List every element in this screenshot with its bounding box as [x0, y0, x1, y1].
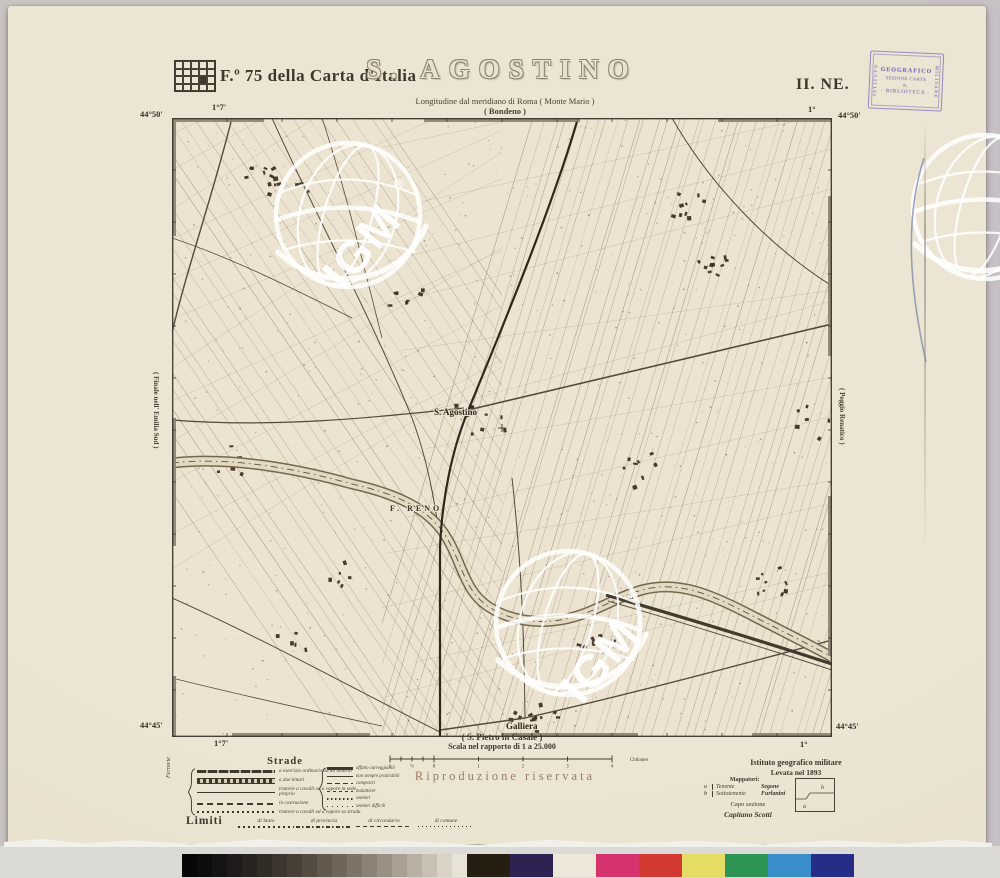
- river-label: F. RENO: [390, 504, 442, 513]
- road-symbol: [327, 767, 353, 770]
- calibration-gray-step: [197, 854, 212, 877]
- mapper-index-diagram: b a: [795, 778, 835, 812]
- sheet-index-grid-icon: [174, 60, 216, 92]
- legend-brace-right: [318, 767, 327, 811]
- topographic-map: S. Agostino F. RENO Galliera: [172, 118, 832, 737]
- calibration-color-patch: [639, 854, 682, 877]
- mapper-row: b Sottotenente Furlanini: [704, 791, 785, 797]
- calibration-color-patch: [768, 854, 811, 877]
- legend-limiti-heading: Limiti: [186, 815, 223, 827]
- institute-credit: Istituto geografico militare: [716, 758, 876, 767]
- calibration-gray-step: [287, 854, 302, 877]
- calibration-color-patch: [553, 854, 596, 877]
- meridian-subtitle: Longitudine dal meridiano di Roma ( Mont…: [305, 96, 705, 106]
- calibration-color-patch: [467, 854, 510, 877]
- under-construction-symbol: [197, 803, 275, 805]
- calibration-gray-step: [317, 854, 332, 877]
- calibration-gray-step: [347, 854, 362, 877]
- coord-lon-bottom-right: 1°: [800, 739, 808, 749]
- survey-date: Levata nel 1893: [716, 768, 876, 777]
- stamp-line4: · BIBLIOTECA ·: [881, 88, 930, 95]
- calibration-color-patch: [510, 854, 553, 877]
- limiti-item: di comune: [418, 818, 474, 827]
- legend-row: affatto carreggiabili: [327, 766, 397, 771]
- road-symbol: [327, 776, 353, 777]
- scale-unit: Chilometri: [630, 758, 648, 763]
- railway-double-symbol: [197, 778, 275, 784]
- boundary-province-symbol: [296, 826, 352, 828]
- calibration-color-patch: [811, 854, 854, 877]
- boundary-district-symbol: [356, 826, 412, 828]
- calibration-gray-step: [257, 854, 272, 877]
- coord-lon-bottom-left: 1°7': [214, 738, 228, 748]
- limiti-item: di Stato: [238, 818, 294, 828]
- calibration-gray-step: [452, 854, 467, 877]
- legend-row: campestri: [327, 781, 397, 786]
- calibration-gray-step: [437, 854, 452, 877]
- color-calibration-bar: [182, 854, 854, 877]
- chief-heading: Capo sezione: [708, 801, 788, 808]
- legend-strade-right: affatto carreggiabili non sempre pratica…: [327, 766, 397, 812]
- quadrant-label: II. NE.: [796, 76, 850, 94]
- calibration-gray-step: [392, 854, 407, 877]
- calibration-gray-step: [227, 854, 242, 877]
- calibration-gray-step: [377, 854, 392, 877]
- limiti-item: di provincia: [296, 818, 352, 828]
- chief-name: Capitano Scotti: [708, 810, 788, 819]
- coord-lon-top-right: 1°: [808, 104, 816, 114]
- adjacent-sheet-south: ( S. Pietro in Casale ): [352, 732, 652, 742]
- calibration-gray-step: [212, 854, 227, 877]
- adjacent-sheet-east: ( Poggio Renatico ): [838, 388, 846, 445]
- calibration-color-patch: [725, 854, 768, 877]
- calibration-gray-step: [407, 854, 422, 877]
- road-symbol: [327, 791, 353, 792]
- calibration-gray-step: [182, 854, 197, 877]
- calibration-gray-step: [302, 854, 317, 877]
- railway-single-symbol: [197, 770, 275, 773]
- coord-lat-bottom-right: 44°45': [836, 721, 859, 731]
- tramway-symbol: [197, 792, 275, 794]
- coord-lat-top-left: 44°50': [140, 109, 163, 119]
- scanned-map-page: F.º 75 della Carta d'Italia S. AGOSTINO …: [0, 0, 1000, 878]
- calibration-color-patch: [682, 854, 725, 877]
- scale-caption: Scala nel rapporto di 1 a 25.000: [352, 742, 652, 751]
- adjacent-sheet-north: ( Bondeno ): [305, 106, 705, 116]
- adjacent-sheet-west: ( Finale nell' Emilia Sud ): [152, 372, 160, 448]
- index-b: b: [821, 785, 824, 791]
- village-label: Galliera: [506, 721, 538, 731]
- stamp-line1: GEOGRAFICO: [881, 66, 933, 74]
- path-symbol: [327, 806, 353, 807]
- limiti-item: di circondario: [356, 818, 412, 827]
- map-canvas: S. Agostino F. RENO Galliera: [172, 118, 832, 737]
- calibration-gray-step: [332, 854, 347, 877]
- boundary-commune-symbol: [418, 826, 474, 827]
- town-label: S. Agostino: [434, 407, 478, 417]
- legend-ferrovie-label: Ferrovie: [166, 757, 172, 778]
- calibration-gray-step: [272, 854, 287, 877]
- library-stamp: ISTITUTO MILITARE GEOGRAFICO SEZIONE CAR…: [868, 50, 944, 111]
- legend-row: sentieri difficili: [327, 804, 397, 809]
- path-symbol: [327, 798, 353, 800]
- mapper-row: a Tenente Segone: [704, 784, 785, 790]
- calibration-gray-step: [242, 854, 257, 877]
- tramway-road-symbol: [197, 811, 275, 813]
- chief-block: Capo sezione Capitano Scotti: [708, 801, 788, 819]
- mappers-block: Mappatori: a Tenente Segone b Sottotenen…: [704, 777, 785, 798]
- calibration-color-patch: [596, 854, 639, 877]
- blue-pencil-mark: [890, 150, 940, 370]
- boundary-state-symbol: [238, 826, 294, 829]
- legend-row: non sempre praticabili: [327, 774, 397, 779]
- calibration-gray-step: [422, 854, 437, 877]
- coord-lat-bottom-left: 44°45': [140, 720, 163, 730]
- page-title: S. AGOSTINO: [252, 54, 752, 85]
- index-a: a: [803, 804, 806, 810]
- calibration-gray-step: [362, 854, 377, 877]
- coord-lat-top-right: 44°50': [838, 110, 861, 120]
- stamp-line2: SEZIONE CARTA: [886, 75, 927, 82]
- stamp-line3: N.: [903, 82, 909, 87]
- mappers-heading: Mappatori:: [704, 777, 785, 783]
- scale-bar: 1 ½ 0 1 2 3 4 Chilometri: [386, 752, 648, 769]
- coord-lon-top-left: 1°7': [212, 102, 226, 112]
- legend-row: sentieri: [327, 796, 397, 801]
- legend-row: mulattiere: [327, 789, 397, 794]
- legend-brace-left: [187, 768, 196, 816]
- road-symbol: [327, 783, 353, 785]
